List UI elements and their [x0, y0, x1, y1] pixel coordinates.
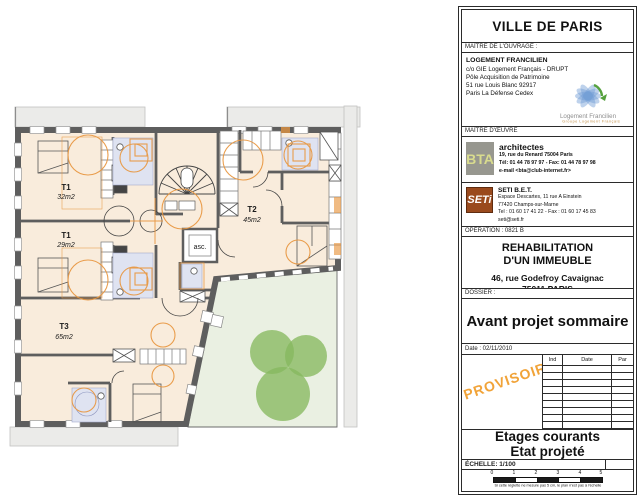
scalebar-tick: 0	[491, 471, 494, 476]
unit-t1b-label: T1	[61, 231, 71, 240]
revision-cell	[611, 401, 633, 408]
revision-cell	[611, 380, 633, 387]
architect-line1: 19, rue du Renard 75004 Paris	[499, 152, 596, 160]
architect-line3: e-mail <bta@club-internet.fr>	[499, 168, 596, 176]
revision-cell	[611, 422, 633, 429]
scalebar-caption: Si cette réglette ne mesure pas 5 cm, le…	[494, 484, 600, 488]
unit-t2-label: T2	[247, 205, 257, 214]
scalebar: 0 1 2 3 4 5	[493, 477, 603, 483]
revision-cell	[542, 373, 562, 380]
revision-cell	[562, 401, 611, 408]
revision-cell	[562, 380, 611, 387]
engineer-line1: Espace Descartes, 11 rue A Einstein	[498, 194, 596, 202]
owner-line1: c/o GIE Logement Français - DRUPT	[466, 66, 629, 74]
revision-cell	[562, 415, 611, 422]
bta-logo: BTA	[466, 142, 494, 175]
revision-header-date: Date	[562, 355, 611, 366]
revision-cell	[562, 373, 611, 380]
owner-logo-sub: Groupe Logement Français	[562, 120, 614, 124]
scalebar-tick: 4	[579, 471, 582, 476]
revision-cell	[542, 394, 562, 401]
lotus-logo-icon	[558, 80, 618, 108]
owner-section: LOGEMENT FRANCILIEN c/o GIE Logement Fra…	[462, 53, 633, 127]
architect-title: architectes	[499, 142, 596, 152]
scale-empty-cell	[605, 460, 633, 469]
unit-t1a-label: T1	[61, 183, 71, 192]
engineer-line2: 77420 Champs-sur-Marne	[498, 202, 596, 210]
architect-band: MAÎTRE D'ŒUVRE	[462, 127, 633, 137]
owner-logo-name: Logement Francilien	[545, 113, 631, 120]
scalebar-section: 0 1 2 3 4 5 Si cette réglette ne mesure …	[462, 470, 633, 490]
scale-label: ÉCHELLE: 1/100	[462, 460, 516, 469]
operation-band: OPÉRATION : 0821 B	[462, 227, 633, 237]
revision-table: Ind Date Par	[542, 355, 633, 429]
project-line1: REHABILITATION	[462, 242, 633, 255]
engineer-line4: seti@seti.fr	[498, 217, 596, 225]
project-section: REHABILITATION D'UN IMMEUBLE 46, rue God…	[462, 237, 633, 289]
city-title: VILLE DE PARIS	[462, 10, 633, 43]
revision-cell	[542, 380, 562, 387]
scale-band: ÉCHELLE: 1/100	[462, 460, 633, 470]
revision-cell	[611, 415, 633, 422]
revision-cell	[611, 394, 633, 401]
sheet-title-line1: Etages courants	[495, 430, 600, 445]
revision-cell	[542, 387, 562, 394]
unit-t1a-area: 32m2	[57, 194, 75, 201]
scalebar-tick: 2	[535, 471, 538, 476]
revision-cell	[562, 394, 611, 401]
project-line2: D'UN IMMEUBLE	[462, 255, 633, 268]
owner-logo: Logement Francilien Groupe Logement Fran…	[545, 80, 631, 126]
date-band: Date : 02/11/2010	[462, 344, 633, 355]
unit-t3-area: 65m2	[55, 334, 73, 341]
floor-plan-sheet: asc. T1 32m2 T1	[0, 0, 640, 502]
owner-band: MAÎTRE DE L'OUVRAGE :	[462, 43, 633, 53]
scalebar-tick: 5	[600, 471, 603, 476]
revision-cell	[562, 408, 611, 415]
seti-logo: SETi	[466, 187, 493, 213]
unit-t1b-area: 29m2	[56, 242, 75, 249]
revision-cell	[611, 366, 633, 373]
sheet-title-line2: Etat projeté	[510, 445, 584, 460]
floor-plan: asc. T1 32m2 T1	[0, 0, 457, 502]
unit-t2-area: 45m2	[243, 217, 261, 224]
revision-cell	[611, 387, 633, 394]
revision-cell	[542, 415, 562, 422]
unit-t3-label: T3	[59, 322, 69, 331]
revision-cell	[611, 373, 633, 380]
revision-cell	[542, 422, 562, 429]
revision-header-par: Par	[611, 355, 633, 366]
elevator: asc.	[183, 229, 217, 262]
owner-name: LOGEMENT FRANCILIEN	[466, 57, 629, 64]
revision-cell	[562, 387, 611, 394]
revision-cell	[562, 422, 611, 429]
scalebar-tick: 3	[557, 471, 560, 476]
dossier-title: Avant projet sommaire	[462, 299, 633, 344]
engineer-name: SETI B.E.T.	[498, 187, 596, 194]
revision-cell	[542, 366, 562, 373]
title-block: VILLE DE PARIS MAÎTRE DE L'OUVRAGE : LOG…	[458, 6, 637, 495]
engineer-section: SETi SETI B.E.T. Espace Descartes, 11 ru…	[462, 183, 633, 227]
revision-cell	[542, 408, 562, 415]
scalebar-segments	[493, 477, 603, 483]
revision-section: PROVISOIRE Ind Date Par	[462, 355, 633, 430]
sheet-title: Etages courants Etat projeté	[462, 430, 633, 460]
dossier-band: DOSSIER :	[462, 289, 633, 299]
project-address1: 46, rue Godefroy Cavaignac	[462, 273, 633, 284]
elevator-label: asc.	[194, 244, 207, 251]
scalebar-tick: 1	[513, 471, 516, 476]
revision-cell	[562, 366, 611, 373]
revision-header-ind: Ind	[542, 355, 562, 366]
revision-cell	[542, 401, 562, 408]
revision-cell	[611, 408, 633, 415]
engineer-line3: Tel : 01 60 17 41 22 - Fax : 01 60 17 45…	[498, 209, 596, 217]
architect-line2: Tél: 01 44 78 97 97 - Fax: 01 44 78 97 9…	[499, 160, 596, 168]
architect-section: BTA architectes 19, rue du Renard 75004 …	[462, 137, 633, 183]
